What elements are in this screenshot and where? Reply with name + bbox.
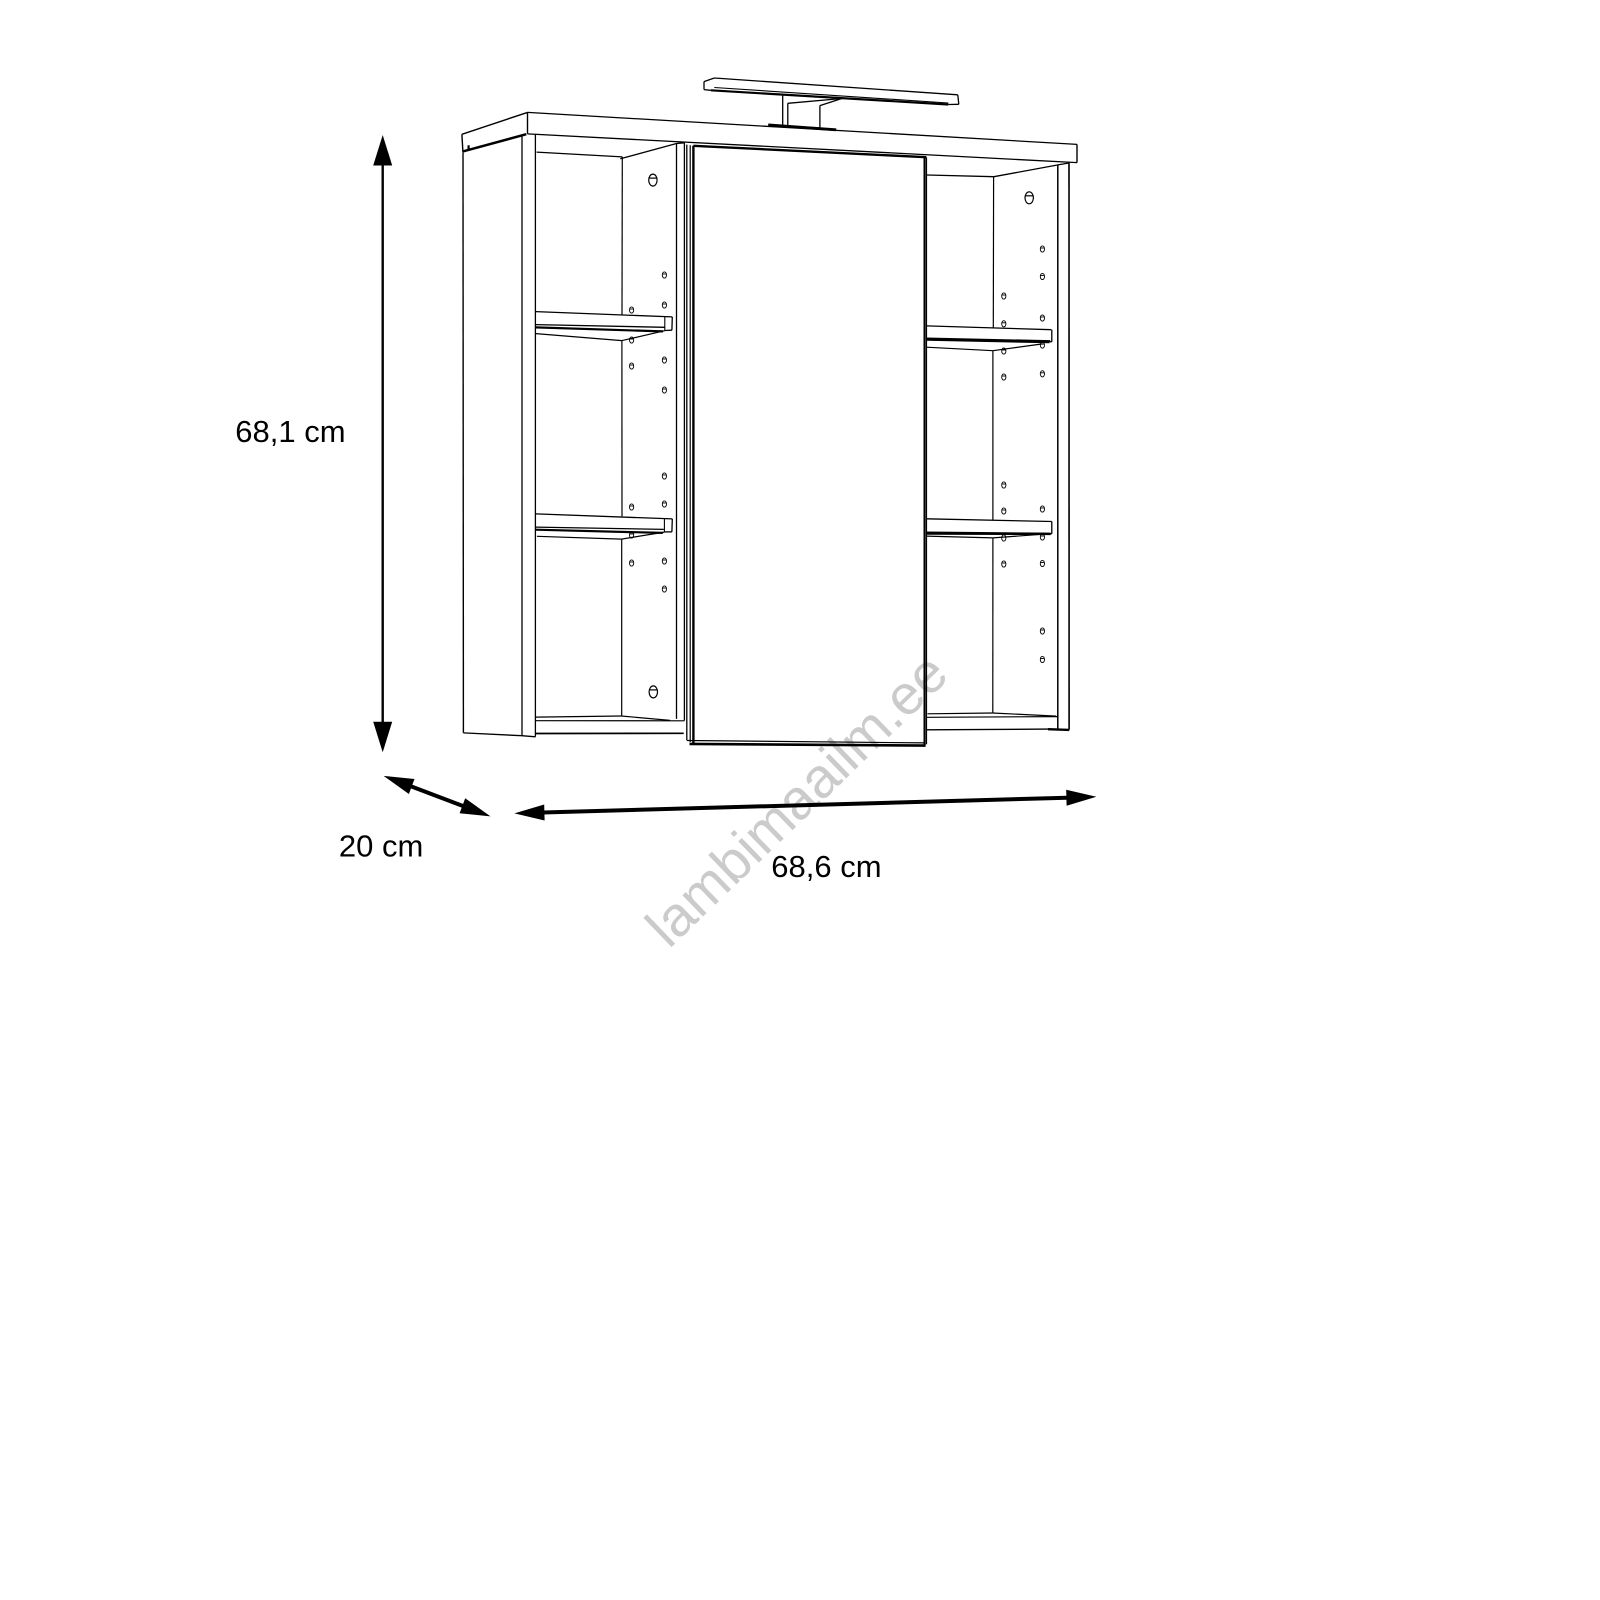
- svg-text:68,1 cm: 68,1 cm: [235, 414, 345, 449]
- svg-text:20 cm: 20 cm: [339, 829, 423, 864]
- svg-text:68,6 cm: 68,6 cm: [771, 849, 881, 884]
